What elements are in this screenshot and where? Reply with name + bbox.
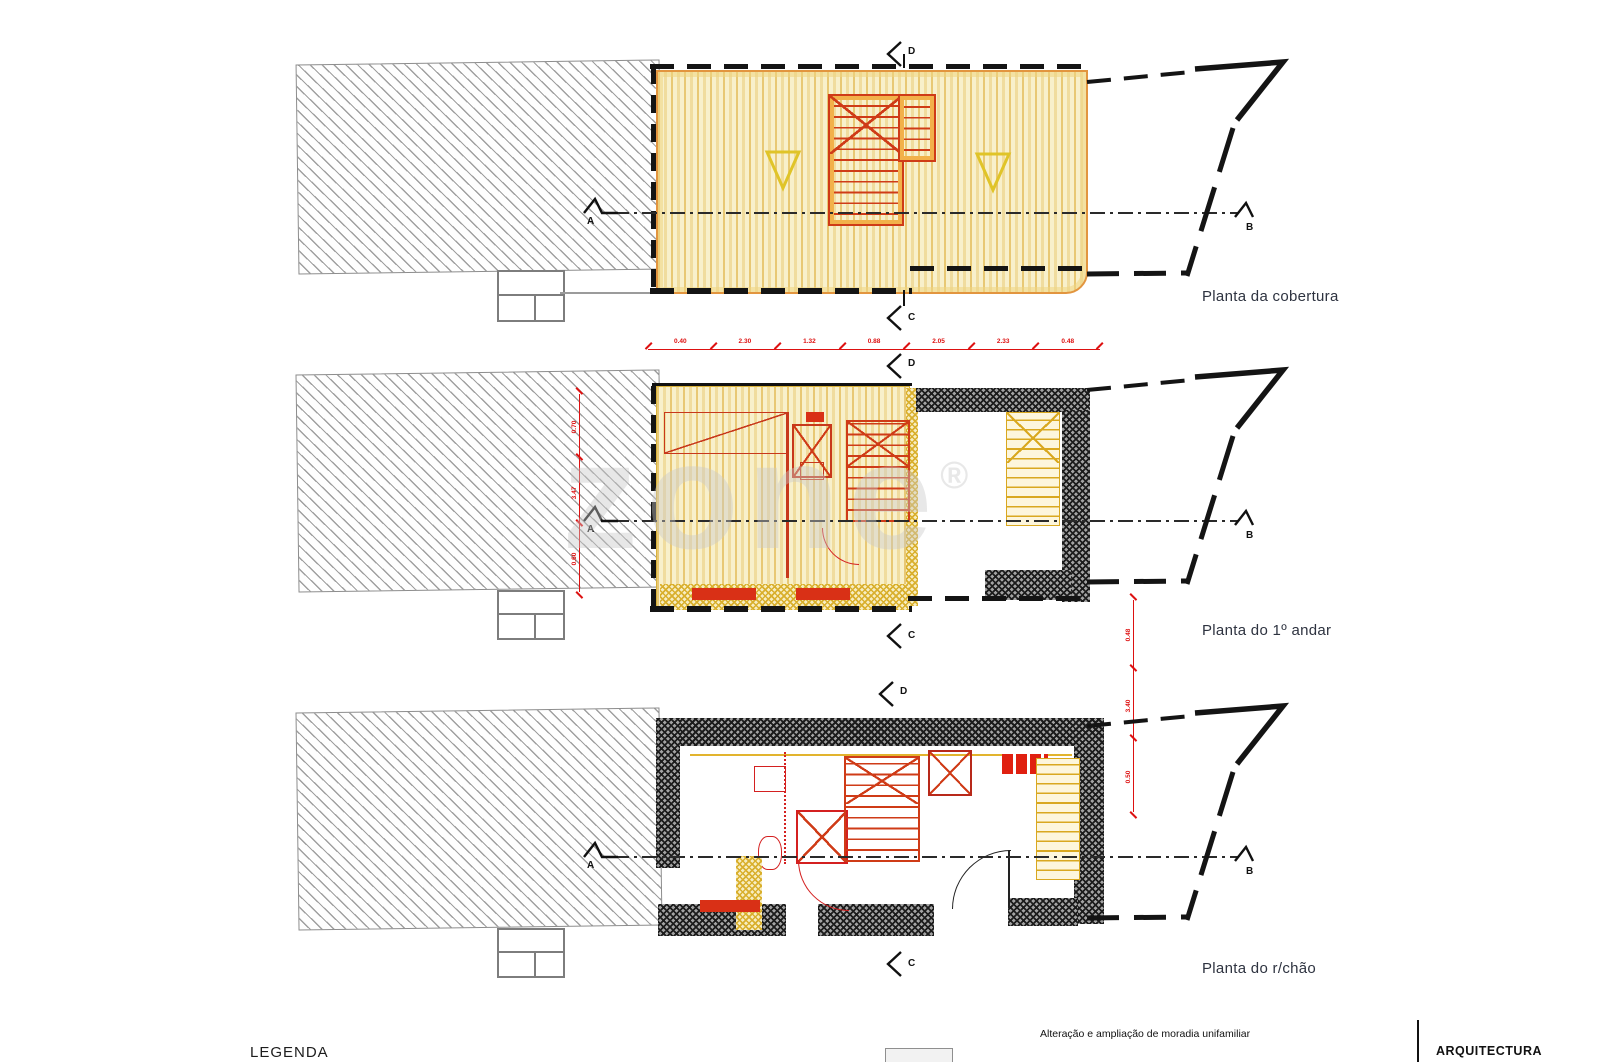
- chimney-detail-roof: [497, 270, 565, 322]
- project-title: Alteração e ampliação de moradia unifami…: [1040, 1028, 1250, 1040]
- first-floor-winder-stair: [1006, 412, 1060, 526]
- ground-wall-top: [656, 718, 1080, 746]
- discipline-title: ARQUITECTURA: [1436, 1044, 1542, 1058]
- drawing-sheet: A B D C Planta da cobertura 0.402.301.32…: [0, 0, 1600, 1062]
- watermark-registered-icon: ®: [940, 455, 976, 497]
- first-floor-bottom-dashed-left: [650, 606, 912, 612]
- ground-fixture-x: [928, 750, 972, 796]
- roof-left-dashed-edge: [651, 66, 656, 294]
- section-letter: A: [587, 860, 594, 871]
- ground-sink: [754, 766, 786, 792]
- first-floor-window-sill: [692, 588, 756, 600]
- watermark-text: zone: [562, 411, 940, 581]
- watermark: zone®: [562, 420, 976, 572]
- titleblock-box: [885, 1048, 953, 1062]
- section-marker-d-mid: D: [884, 352, 904, 385]
- ground-wall-bottom-c: [1008, 898, 1078, 926]
- first-floor-window-sill-2: [796, 588, 850, 600]
- chimney-divider-2: [534, 613, 536, 638]
- roof-bottom-dashed-right: [910, 266, 1086, 271]
- dim-value: 0.88: [868, 339, 881, 346]
- section-line-stub: [903, 54, 905, 68]
- ground-door-arc-black: [952, 850, 1011, 909]
- ground-winder-stair: [1036, 758, 1080, 880]
- first-floor-top-wall-line: [652, 383, 912, 386]
- existing-building-hatch-roof: [296, 59, 663, 274]
- dim-value: 0.40: [674, 339, 687, 346]
- ground-door-leaf: [1008, 850, 1010, 908]
- dim-value: 0.48: [1126, 629, 1133, 642]
- section-letter: D: [908, 46, 915, 57]
- section-marker-d-roof: D: [884, 40, 904, 73]
- dim-segment: 0.40: [648, 338, 713, 352]
- first-floor-bottom-dashed-right: [908, 596, 1092, 601]
- dim-value: 1.32: [803, 339, 816, 346]
- dim-segment: 2.33: [971, 338, 1036, 352]
- section-marker-a-ground: A: [583, 840, 619, 865]
- existing-building-hatch-ground: [295, 707, 662, 930]
- ground-wall-left: [656, 718, 680, 868]
- dim-segment: 0.48: [1035, 338, 1100, 352]
- roof-stair-opening: [828, 94, 904, 226]
- section-marker-d-ground: D: [876, 680, 896, 713]
- plan-label-roof: Planta da cobertura: [1202, 288, 1339, 305]
- chimney-divider: [499, 294, 563, 296]
- section-letter: C: [908, 312, 915, 323]
- section-marker-c-roof: C: [884, 304, 904, 337]
- first-floor-stone-wall-top: [916, 388, 1090, 412]
- roof-stair-wing: [898, 94, 936, 162]
- dim-segment: 0.88: [842, 338, 907, 352]
- legend-title: LEGENDA: [250, 1044, 329, 1061]
- dim-value: 2.30: [739, 339, 752, 346]
- connector-line-roof: [560, 292, 656, 294]
- section-letter: A: [587, 216, 594, 227]
- chimney-divider-2: [534, 951, 536, 976]
- section-letter: D: [900, 686, 907, 697]
- chimney-divider: [499, 613, 563, 615]
- dim-chain-mid-top: 0.402.301.320.882.052.330.48: [648, 338, 1100, 352]
- neighbour-boundary-roof: [1085, 56, 1300, 284]
- chimney-detail-ground: [497, 928, 565, 978]
- ground-yellow-slats: [736, 856, 762, 930]
- section-marker-c-ground: C: [884, 950, 904, 983]
- roof-bottom-dashed-left: [650, 288, 912, 294]
- dim-value: 2.05: [932, 339, 945, 346]
- section-letter: C: [908, 630, 915, 641]
- section-marker-c-first: C: [884, 622, 904, 655]
- section-letter: D: [908, 358, 915, 369]
- section-marker-a-roof: A: [583, 196, 619, 221]
- section-letter: C: [908, 958, 915, 969]
- ground-stair: [844, 756, 920, 862]
- neighbour-boundary-ground: [1085, 700, 1300, 928]
- chimney-divider-2: [534, 294, 536, 320]
- roof-slope-triangle-left: [764, 148, 802, 192]
- dim-segment: 2.30: [713, 338, 778, 352]
- ground-window-sill: [700, 900, 760, 912]
- chimney-detail-first: [497, 590, 565, 640]
- dim-segment: 1.32: [777, 338, 842, 352]
- dim-value: 0.48: [1061, 339, 1074, 346]
- dim-value: 2.33: [997, 339, 1010, 346]
- titleblock-divider: [1417, 1020, 1419, 1062]
- chimney-divider: [499, 951, 563, 953]
- dim-segment: 2.05: [906, 338, 971, 352]
- neighbour-boundary-first: [1085, 364, 1300, 592]
- section-line-stub: [903, 290, 905, 306]
- ground-door-arc-red: [798, 860, 849, 911]
- plan-label-ground: Planta do r/chão: [1202, 960, 1316, 977]
- roof-slope-triangle-right: [974, 150, 1012, 194]
- dim-segment: 0.48: [1126, 600, 1140, 671]
- roof-top-dashed-edge: [650, 64, 1086, 69]
- plan-label-first: Planta do 1º andar: [1202, 622, 1331, 639]
